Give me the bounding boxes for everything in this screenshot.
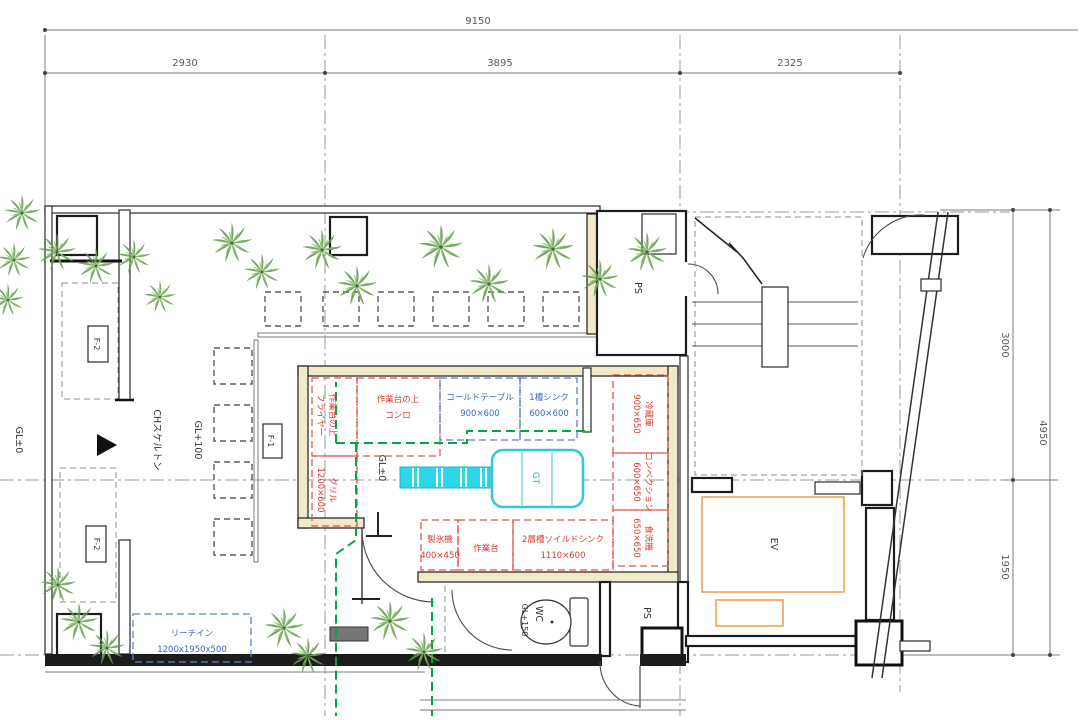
ev-door xyxy=(716,600,783,626)
wall-wc-ps xyxy=(600,582,610,656)
wc-fixtures xyxy=(521,598,588,646)
label-reach-in-size: 1200x1950x500 xyxy=(157,645,227,655)
label-wc-level: GL+150 xyxy=(520,604,529,637)
wall-storefront-upper xyxy=(119,210,130,400)
dim-right-seg-1: 3000 xyxy=(999,332,1010,357)
label-stove-name: 作業台の上 xyxy=(377,394,420,405)
soiled-sink-box xyxy=(513,520,613,570)
entrance-arrow-icon xyxy=(97,434,117,456)
label-cold-table-size: 900×600 xyxy=(460,409,500,419)
label-convection-name: コンベクション xyxy=(643,452,653,512)
wall-tab xyxy=(921,279,941,291)
dim-right-seg-2: 1950 xyxy=(999,554,1010,579)
label-sink1-name: 1槽シンク xyxy=(529,392,568,403)
label-cold-table-name: コールドテーブル xyxy=(446,392,514,403)
wall-corridor xyxy=(680,356,688,582)
label-ch-skeleton: CHスケルトン xyxy=(151,409,162,470)
label-f1: F-1 xyxy=(266,435,275,448)
label-grill-name: グリル xyxy=(327,477,338,503)
wall-stub-right xyxy=(900,641,930,651)
ice-maker-box xyxy=(421,520,458,570)
counters xyxy=(60,283,598,602)
label-fryer-name: 作業台の上 xyxy=(327,394,338,437)
label-f2-bottom: F-2 xyxy=(92,538,101,551)
dim-right-total: 4950 xyxy=(1037,420,1048,445)
planter-top-mid xyxy=(330,217,367,255)
label-grease-trap: GT xyxy=(530,472,540,485)
label-sink1-size: 600×600 xyxy=(529,409,569,419)
label-gl-floor: GL+100 xyxy=(192,421,203,460)
kitchen-wall-jog xyxy=(298,518,364,528)
label-reach-in-name: リーチイン xyxy=(171,629,214,639)
break-line xyxy=(695,218,762,284)
dim-top-seg-2: 3895 xyxy=(487,58,512,69)
kitchen-wall-top xyxy=(298,366,678,376)
door-arc-bottom xyxy=(600,662,640,706)
wall-bottom-right xyxy=(640,654,686,666)
dim-top-total: 9150 xyxy=(465,16,490,27)
label-ice-maker-size: 400×450 xyxy=(420,551,460,561)
label-wc: WC xyxy=(533,606,544,622)
label-fridge-size: 900×650 xyxy=(631,394,641,434)
wall-ev-bottom xyxy=(686,636,856,646)
label-ev: EV xyxy=(768,538,779,551)
label-convection-size: 600×650 xyxy=(631,462,641,502)
cyan-fixtures xyxy=(400,450,583,507)
stairs xyxy=(692,217,862,475)
floor-plan-svg: 9150 2930 3895 2325 3000 1950 4950 xyxy=(0,0,1080,720)
label-dishwasher-name: 食洗機 xyxy=(643,525,654,551)
label-gl-terrace: GL±0 xyxy=(13,427,24,454)
label-gl-kitchen: GL±0 xyxy=(376,455,387,482)
toilet-tank xyxy=(570,598,588,646)
elevator xyxy=(702,497,844,626)
door-arc-ps-top xyxy=(688,264,718,294)
label-dishwasher-size: 650×650 xyxy=(631,518,641,558)
dim-top-seg-3: 2325 xyxy=(777,58,802,69)
wall-bottom-left xyxy=(45,654,602,666)
kitchen-wall-left xyxy=(298,366,308,528)
dim-top-seg-1: 2930 xyxy=(172,58,197,69)
label-stove-type: コンロ xyxy=(385,411,411,421)
label-ice-maker-name: 製氷機 xyxy=(427,534,453,545)
label-grill-size: 1200×600 xyxy=(315,468,325,513)
column-ev-1 xyxy=(692,478,732,492)
label-soiled-sink-name: 2層槽ソイルドシンク xyxy=(522,534,604,545)
label-work-table: 作業台 xyxy=(473,543,499,554)
label-soiled-sink-size: 1110×600 xyxy=(541,551,586,561)
label-f2-top: F-2 xyxy=(92,338,101,351)
label-fridge-name: 冷蔵庫 xyxy=(643,401,654,427)
kitchen-inner-wall xyxy=(583,368,591,432)
label-ps-top: PS xyxy=(632,282,643,294)
door-arc-vestibule xyxy=(362,530,434,602)
column-ev-3 xyxy=(862,471,892,505)
kitchen-wall-right xyxy=(668,366,678,578)
floor-plan-canvas: 9150 2930 3895 2325 3000 1950 4950 xyxy=(0,0,1080,720)
label-fryer-type: フライヤー xyxy=(315,394,325,436)
wall-storefront-lower xyxy=(119,540,130,654)
stair-stringer xyxy=(762,287,788,367)
column-ev-2 xyxy=(815,482,860,494)
planter-top-left xyxy=(57,216,97,255)
wall-shaft-right xyxy=(866,508,894,620)
label-ps-bottom: PS xyxy=(641,607,652,619)
kitchen-wall-bottom xyxy=(418,572,678,582)
door-arc-wc xyxy=(452,590,512,650)
